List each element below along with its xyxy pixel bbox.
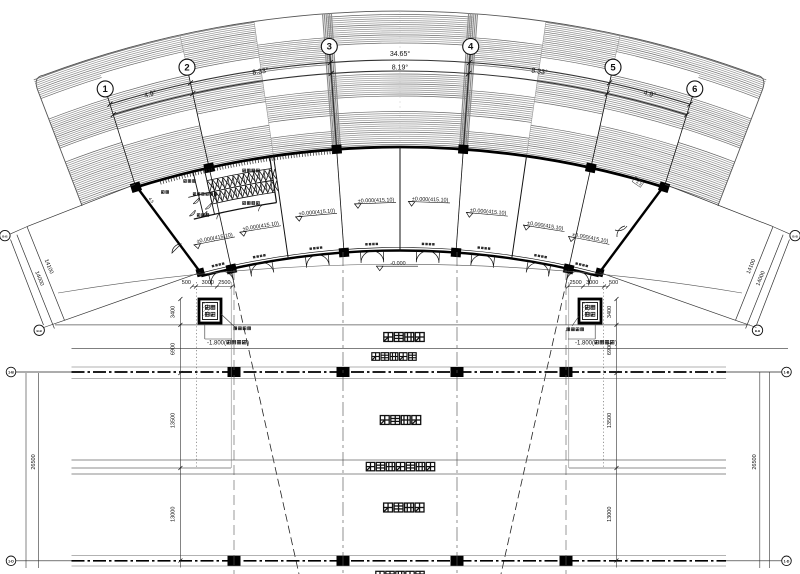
svg-text:B-B: B-B bbox=[37, 329, 43, 333]
svg-text:2: 2 bbox=[184, 62, 189, 73]
svg-text:13500: 13500 bbox=[171, 413, 177, 428]
svg-text:26500: 26500 bbox=[31, 454, 37, 469]
svg-text:-1.800(: -1.800( bbox=[207, 341, 226, 347]
svg-text:500: 500 bbox=[609, 280, 618, 286]
svg-text:): ) bbox=[247, 341, 249, 347]
svg-text:1-D: 1-D bbox=[8, 559, 14, 563]
svg-text:26500: 26500 bbox=[752, 454, 758, 469]
svg-text:-1.800(: -1.800( bbox=[575, 341, 594, 347]
svg-text:1-D: 1-D bbox=[784, 559, 790, 563]
svg-text:B-B: B-B bbox=[792, 234, 798, 238]
svg-text:13000: 13000 bbox=[171, 507, 177, 522]
svg-text:6: 6 bbox=[692, 84, 697, 95]
svg-text:5: 5 bbox=[610, 62, 616, 73]
svg-text:1-B: 1-B bbox=[8, 371, 14, 375]
svg-text:6900: 6900 bbox=[607, 343, 613, 355]
svg-text:3400: 3400 bbox=[171, 306, 177, 318]
svg-text:34.65°: 34.65° bbox=[390, 50, 411, 58]
svg-text:3000: 3000 bbox=[586, 280, 598, 286]
svg-text:3400: 3400 bbox=[607, 306, 613, 318]
svg-text:13000: 13000 bbox=[607, 507, 613, 522]
svg-text:4: 4 bbox=[468, 42, 474, 53]
svg-text:1-B: 1-B bbox=[784, 371, 790, 375]
svg-text:3: 3 bbox=[327, 42, 332, 53]
svg-text:B-B: B-B bbox=[2, 234, 8, 238]
svg-text:1: 1 bbox=[103, 84, 109, 95]
svg-text:500: 500 bbox=[182, 280, 191, 286]
svg-text:13500: 13500 bbox=[607, 413, 613, 428]
svg-text:2500: 2500 bbox=[569, 280, 581, 286]
svg-text:B-B: B-B bbox=[755, 329, 761, 333]
svg-text:6900: 6900 bbox=[171, 343, 177, 355]
svg-text:8.19°: 8.19° bbox=[392, 64, 409, 72]
svg-text:2500: 2500 bbox=[218, 280, 230, 286]
svg-text:3000: 3000 bbox=[202, 280, 214, 286]
